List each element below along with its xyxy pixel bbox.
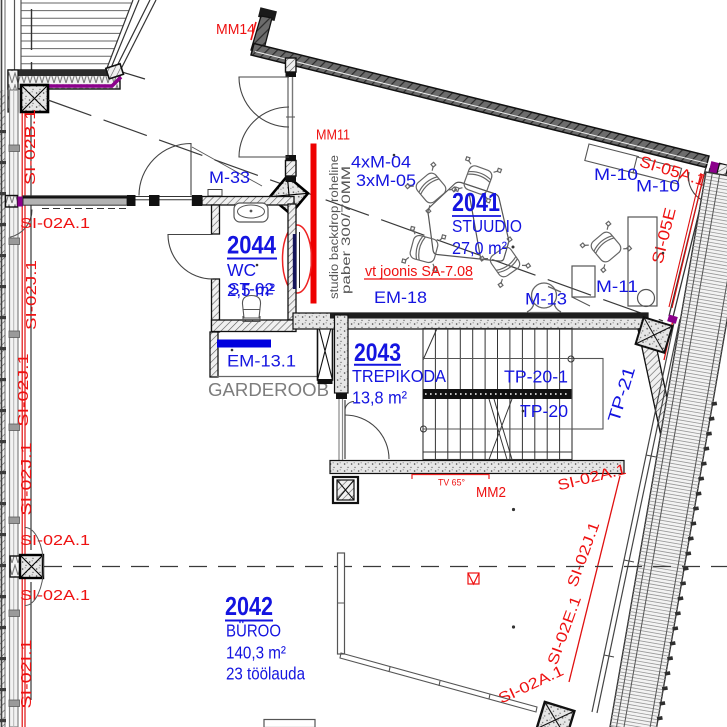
svg-text:paber 300/70MM: paber 300/70MM bbox=[341, 166, 353, 294]
svg-text:MM14: MM14 bbox=[216, 21, 255, 38]
svg-text:SI-02B.1: SI-02B.1 bbox=[22, 109, 39, 185]
svg-text:ST-02: ST-02 bbox=[228, 281, 274, 299]
svg-text:SI-02A.1: SI-02A.1 bbox=[20, 215, 90, 232]
svg-text:WC: WC bbox=[227, 260, 256, 280]
svg-text:M-11: M-11 bbox=[596, 277, 638, 296]
svg-text:GARDEROOB: GARDEROOB bbox=[208, 379, 329, 400]
svg-text:M-13: M-13 bbox=[525, 290, 567, 309]
svg-text:SI-02A.1: SI-02A.1 bbox=[20, 532, 90, 549]
svg-text:SI-02J.1: SI-02J.1 bbox=[15, 354, 32, 427]
svg-text:SI-02J.1: SI-02J.1 bbox=[23, 260, 40, 330]
svg-text:MM2: MM2 bbox=[476, 484, 506, 501]
svg-text:studio backdrop roheline: studio backdrop roheline bbox=[329, 155, 341, 299]
svg-text:SI-02J.1: SI-02J.1 bbox=[18, 443, 35, 516]
svg-text:2041: 2041 bbox=[452, 187, 500, 217]
svg-text:TP-20: TP-20 bbox=[520, 401, 568, 421]
svg-text:SI-02A.1: SI-02A.1 bbox=[20, 587, 90, 604]
svg-text:TREPIKODA: TREPIKODA bbox=[352, 366, 446, 386]
svg-text:2044: 2044 bbox=[227, 232, 276, 260]
svg-text:2042: 2042 bbox=[225, 591, 273, 621]
svg-text:EM-13.1: EM-13.1 bbox=[227, 352, 296, 371]
svg-text:M-33: M-33 bbox=[209, 168, 250, 187]
svg-text:SI-02I.1: SI-02I.1 bbox=[18, 640, 35, 709]
svg-text:STUUDIO: STUUDIO bbox=[452, 216, 522, 236]
svg-text:EM-18: EM-18 bbox=[374, 288, 427, 307]
svg-text:2043: 2043 bbox=[354, 339, 401, 367]
svg-text:13,8 m²: 13,8 m² bbox=[352, 388, 407, 408]
svg-text:4xM-04: 4xM-04 bbox=[351, 153, 411, 172]
svg-text:BÜROO: BÜROO bbox=[226, 621, 281, 641]
svg-text:M-10: M-10 bbox=[594, 165, 638, 184]
svg-text:3xM-05: 3xM-05 bbox=[356, 171, 416, 190]
svg-text:TP-20-1: TP-20-1 bbox=[504, 367, 568, 387]
svg-text:vt joonis SA-7.08: vt joonis SA-7.08 bbox=[365, 264, 473, 280]
svg-text:23 töölauda: 23 töölauda bbox=[226, 664, 305, 684]
svg-text:140,3 m²: 140,3 m² bbox=[226, 643, 286, 663]
svg-text:MM11: MM11 bbox=[316, 127, 350, 144]
svg-text:TV 65°: TV 65° bbox=[438, 478, 465, 488]
svg-text:27,0 m²: 27,0 m² bbox=[452, 238, 507, 258]
